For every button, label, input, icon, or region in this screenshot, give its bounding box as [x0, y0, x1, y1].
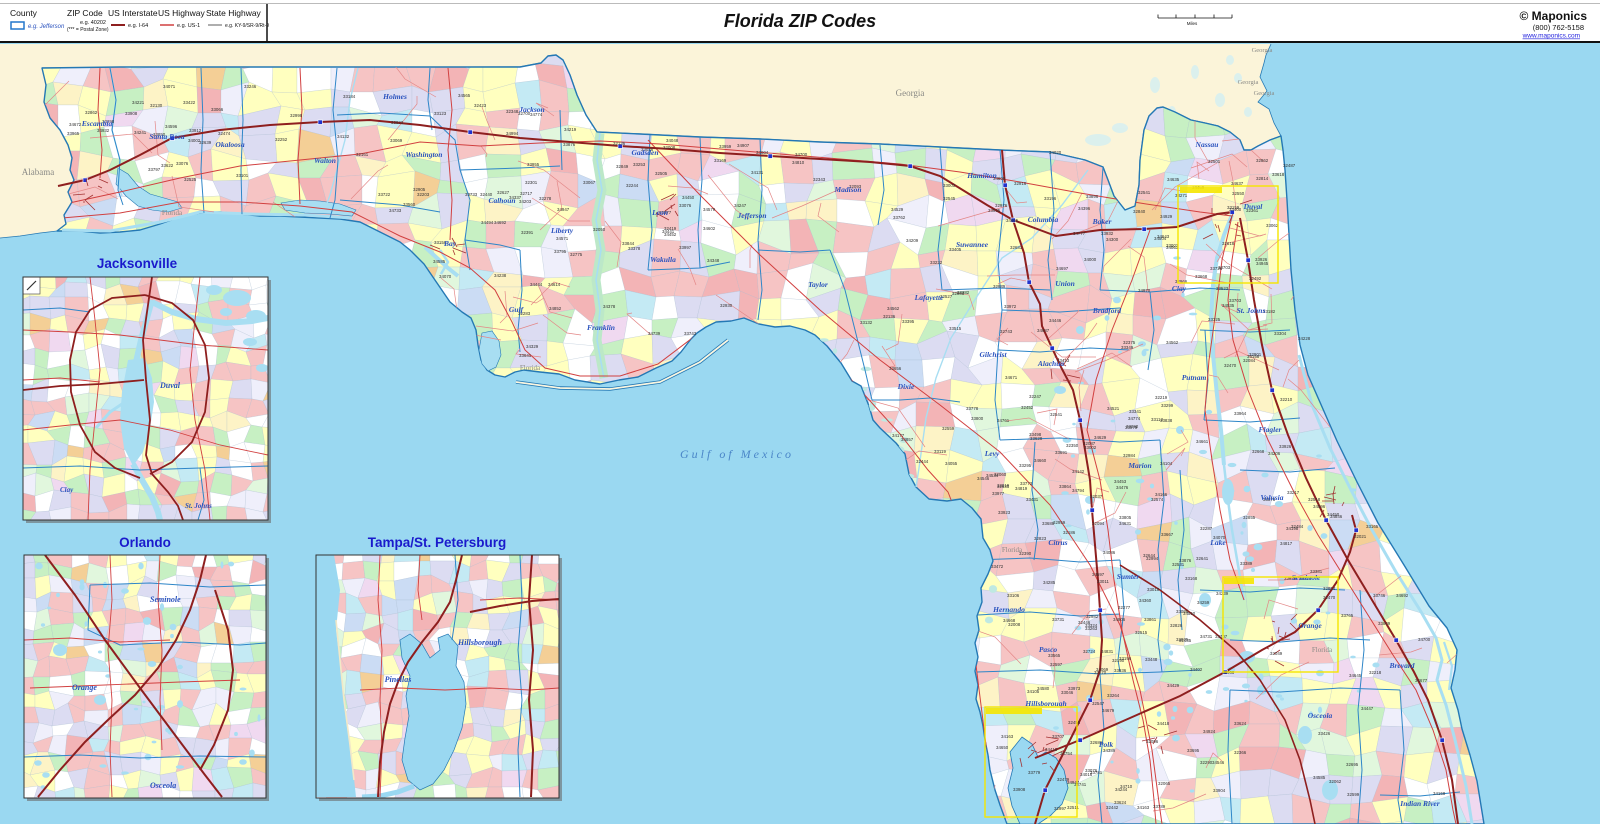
svg-text:US Interstate: US Interstate: [108, 8, 158, 18]
svg-text:34585: 34585: [433, 259, 446, 264]
svg-text:33271: 33271: [1175, 193, 1188, 198]
svg-text:34396: 34396: [1078, 206, 1091, 211]
svg-text:33965: 33965: [67, 131, 80, 136]
svg-text:34660: 34660: [1034, 458, 1047, 463]
svg-text:Holmes: Holmes: [382, 92, 407, 101]
svg-text:33861: 33861: [1144, 617, 1157, 622]
svg-text:33295: 33295: [1019, 463, 1032, 468]
svg-text:33624: 33624: [1234, 721, 1247, 726]
svg-text:32252: 32252: [275, 137, 288, 142]
svg-text:33973: 33973: [1068, 686, 1081, 691]
svg-text:34209: 34209: [906, 238, 919, 243]
svg-text:32474: 32474: [218, 131, 231, 136]
svg-text:32681: 32681: [1010, 245, 1023, 250]
svg-text:33923: 33923: [998, 510, 1011, 515]
svg-text:Escambia: Escambia: [81, 119, 113, 128]
svg-text:32190: 32190: [1112, 658, 1125, 663]
svg-text:32916: 32916: [1014, 181, 1027, 186]
svg-text:32547: 32547: [1092, 701, 1105, 706]
svg-text:32531: 32531: [1172, 562, 1185, 567]
svg-text:34219: 34219: [564, 127, 577, 132]
svg-text:32959: 32959: [1053, 520, 1066, 525]
svg-text:Orlando: Orlando: [119, 535, 171, 550]
svg-text:34131: 34131: [751, 170, 764, 175]
svg-text:32470: 32470: [1323, 595, 1336, 600]
svg-text:33622: 33622: [161, 163, 174, 168]
svg-text:33908: 33908: [125, 111, 138, 116]
svg-text:33324: 33324: [1085, 623, 1098, 628]
svg-text:33349: 33349: [1121, 345, 1134, 350]
svg-text:32998: 32998: [290, 113, 303, 118]
svg-text:34521: 34521: [1107, 406, 1120, 411]
svg-text:32627: 32627: [497, 190, 510, 195]
svg-text:34645: 34645: [1349, 673, 1362, 678]
svg-text:34629: 34629: [1094, 435, 1107, 440]
svg-text:33222: 33222: [930, 260, 943, 265]
svg-text:34731: 34731: [1200, 634, 1213, 639]
svg-text:34637: 34637: [1231, 181, 1244, 186]
svg-text:32599: 32599: [1347, 792, 1360, 797]
svg-text:34104: 34104: [1160, 461, 1173, 466]
svg-text:Marion: Marion: [1127, 461, 1151, 470]
svg-text:33904: 33904: [1213, 788, 1226, 793]
svg-text:33926: 33926: [1279, 444, 1292, 449]
svg-text:33168: 33168: [1185, 576, 1198, 581]
svg-text:33695: 33695: [1187, 748, 1200, 753]
svg-text:Columbia: Columbia: [1028, 215, 1059, 224]
svg-text:32210: 32210: [1280, 397, 1293, 402]
svg-text:32862: 32862: [1256, 158, 1269, 163]
svg-text:34534: 34534: [986, 473, 999, 478]
svg-text:34177: 34177: [892, 433, 905, 438]
svg-text:33076: 33076: [176, 161, 189, 166]
svg-text:33809: 33809: [1378, 621, 1391, 626]
svg-text:34739: 34739: [648, 331, 661, 336]
svg-text:34994: 34994: [506, 131, 519, 136]
svg-text:34447: 34447: [1361, 706, 1374, 711]
svg-text:Pinellas: Pinellas: [385, 675, 412, 684]
svg-text:33778: 33778: [966, 406, 979, 411]
svg-text:34614: 34614: [548, 282, 561, 287]
svg-text:33560: 33560: [403, 202, 416, 207]
svg-text:34055: 34055: [945, 461, 958, 466]
svg-text:e.g. Jefferson: e.g. Jefferson: [28, 24, 65, 30]
svg-text:32505: 32505: [655, 171, 668, 176]
svg-text:33299: 33299: [1161, 403, 1174, 408]
svg-text:Putnam: Putnam: [1182, 373, 1207, 382]
svg-text:33618: 33618: [1272, 172, 1285, 177]
svg-text:33628: 33628: [1030, 436, 1043, 441]
svg-text:32247: 32247: [1029, 394, 1042, 399]
svg-text:34932: 34932: [97, 128, 110, 133]
svg-text:32743: 32743: [1000, 329, 1013, 334]
svg-text:34259: 34259: [1197, 600, 1210, 605]
svg-text:33765: 33765: [1341, 613, 1354, 618]
svg-text:Indian River: Indian River: [1399, 799, 1439, 808]
svg-text:34692: 34692: [1396, 593, 1409, 598]
svg-text:33746: 33746: [1373, 593, 1386, 598]
svg-text:33123: 33123: [434, 111, 447, 116]
svg-text:34444: 34444: [530, 282, 543, 287]
svg-text:34774: 34774: [1128, 416, 1141, 421]
svg-text:Jackson: Jackson: [518, 105, 544, 114]
svg-text:34777: 34777: [1073, 231, 1086, 236]
svg-text:32541: 32541: [1050, 412, 1063, 417]
svg-text:34579: 34579: [703, 207, 716, 212]
svg-text:Gulf: Gulf: [509, 305, 525, 314]
svg-text:33781: 33781: [1090, 770, 1103, 775]
svg-text:34241: 34241: [134, 130, 147, 135]
svg-text:(800) 762-5158: (800) 762-5158: [1533, 23, 1584, 32]
svg-text:Seminole: Seminole: [150, 595, 181, 604]
svg-text:Clay: Clay: [1172, 284, 1187, 293]
svg-text:33838: 33838: [1160, 418, 1173, 423]
svg-text:32444: 32444: [916, 459, 929, 464]
svg-text:34142: 34142: [1072, 469, 1085, 474]
svg-text:34597: 34597: [1092, 572, 1105, 577]
svg-text:32639: 32639: [199, 140, 212, 145]
svg-text:32348: 32348: [506, 109, 519, 114]
svg-text:Jefferson: Jefferson: [736, 211, 766, 220]
svg-text:32290: 32290: [1200, 760, 1213, 765]
svg-text:County: County: [10, 8, 38, 18]
svg-text:33184: 33184: [343, 94, 356, 99]
svg-text:33935: 33935: [988, 208, 1001, 213]
svg-text:32008: 32008: [663, 145, 676, 150]
svg-text:33722: 33722: [378, 192, 391, 197]
svg-text:34546: 34546: [1212, 760, 1225, 765]
svg-text:33067: 33067: [583, 180, 596, 185]
svg-text:32492: 32492: [1249, 276, 1262, 281]
svg-text:Okaloosa: Okaloosa: [215, 140, 244, 149]
svg-text:34416: 34416: [1045, 747, 1058, 752]
svg-text:Clay: Clay: [60, 486, 74, 494]
svg-text:34700: 34700: [1418, 637, 1431, 642]
svg-text:34665: 34665: [1006, 218, 1019, 223]
svg-text:32862: 32862: [85, 110, 98, 115]
svg-text:33731: 33731: [1052, 617, 1065, 622]
svg-text:Suwannee: Suwannee: [956, 240, 989, 249]
svg-text:33389: 33389: [1240, 561, 1253, 566]
svg-text:34000: 34000: [1084, 257, 1097, 262]
svg-text:33448: 33448: [1145, 657, 1158, 662]
svg-text:Madison: Madison: [833, 185, 861, 194]
svg-text:32724: 32724: [1083, 649, 1096, 654]
svg-text:34761: 34761: [997, 418, 1010, 423]
svg-text:32350: 32350: [1066, 443, 1079, 448]
svg-text:33003: 33003: [943, 183, 956, 188]
svg-text:Gulf of Mexico: Gulf of Mexico: [680, 447, 794, 461]
svg-text:Hamilton: Hamilton: [966, 171, 997, 180]
svg-text:34810: 34810: [792, 160, 805, 165]
svg-text:33304: 33304: [1274, 331, 1287, 336]
svg-text:Walton: Walton: [314, 156, 336, 165]
svg-text:33076: 33076: [679, 203, 692, 208]
svg-text:33196: 33196: [1044, 196, 1057, 201]
svg-text:32574: 32574: [1151, 497, 1164, 502]
svg-text:32559: 32559: [942, 426, 955, 431]
svg-text:34071: 34071: [163, 84, 176, 89]
svg-text:34329: 34329: [526, 344, 539, 349]
svg-text:33101: 33101: [236, 173, 249, 178]
svg-text:34221: 34221: [132, 100, 145, 105]
svg-text:32695: 32695: [1346, 762, 1359, 767]
svg-text:32037: 32037: [1090, 494, 1103, 499]
svg-text:Lafayette: Lafayette: [914, 293, 944, 302]
svg-text:34907: 34907: [737, 143, 750, 148]
svg-text:33908: 33908: [1013, 787, 1026, 792]
svg-text:Citrus: Citrus: [1048, 538, 1067, 547]
svg-text:34661: 34661: [1196, 439, 1209, 444]
svg-text:34203: 34203: [519, 199, 532, 204]
svg-text:33707: 33707: [1052, 734, 1065, 739]
svg-text:34562: 34562: [1166, 340, 1179, 345]
svg-text:e.g. KY-9/SR-9/Rt-9: e.g. KY-9/SR-9/Rt-9: [225, 23, 269, 29]
svg-text:Florida: Florida: [1002, 546, 1023, 554]
svg-text:32282: 32282: [957, 290, 970, 295]
svg-text:33515: 33515: [949, 326, 962, 331]
svg-text:33823: 33823: [391, 120, 404, 125]
svg-text:32484: 32484: [1291, 524, 1304, 529]
svg-text:34565: 34565: [458, 93, 471, 98]
svg-text:34580: 34580: [1037, 686, 1050, 691]
svg-text:33169: 33169: [714, 158, 727, 163]
svg-text:34020: 34020: [1049, 150, 1062, 155]
svg-text:Orange: Orange: [1298, 621, 1322, 630]
svg-text:© Maponics: © Maponics: [1519, 9, 1587, 23]
svg-text:Hernando: Hernando: [992, 605, 1025, 614]
svg-text:Duval: Duval: [1243, 202, 1264, 211]
svg-text:33018: 33018: [1147, 587, 1160, 592]
svg-text:34450: 34450: [1327, 512, 1340, 517]
svg-text:Tampa/St. Petersburg: Tampa/St. Petersburg: [368, 535, 507, 550]
svg-text:33779: 33779: [1028, 770, 1041, 775]
svg-text:32094: 32094: [1092, 521, 1105, 526]
svg-text:34168: 34168: [1433, 791, 1446, 796]
svg-text:34596: 34596: [1313, 504, 1326, 509]
svg-text:32136: 32136: [613, 141, 626, 146]
svg-text:32597: 32597: [1050, 662, 1063, 667]
svg-text:State Highway: State Highway: [206, 8, 262, 18]
svg-text:32096: 32096: [1146, 739, 1159, 744]
svg-text:32982: 32982: [1086, 614, 1099, 619]
svg-text:34819: 34819: [1015, 486, 1028, 491]
svg-text:32277: 32277: [1118, 605, 1131, 610]
svg-text:Osceola: Osceola: [1308, 711, 1333, 720]
svg-text:33668: 33668: [1195, 274, 1208, 279]
svg-text:32826: 32826: [1170, 623, 1183, 628]
svg-text:33955: 33955: [527, 162, 540, 167]
svg-text:Calhoun: Calhoun: [488, 196, 515, 205]
svg-text:32930: 32930: [720, 303, 733, 308]
svg-text:32458: 32458: [1068, 720, 1081, 725]
svg-text:32989: 32989: [993, 284, 1006, 289]
svg-text:32442: 32442: [1106, 805, 1119, 810]
svg-text:32366: 32366: [1234, 750, 1247, 755]
svg-text:32065: 32065: [1158, 781, 1171, 786]
svg-text:32717: 32717: [520, 191, 533, 196]
svg-text:32130: 32130: [150, 103, 163, 108]
svg-text:32391: 32391: [521, 230, 534, 235]
svg-text:32244: 32244: [626, 183, 639, 188]
svg-text:34650: 34650: [996, 745, 1009, 750]
svg-text:Washington: Washington: [406, 150, 443, 159]
svg-text:33936: 33936: [1114, 668, 1127, 673]
svg-text:34643: 34643: [1157, 234, 1170, 239]
svg-text:32823: 32823: [1034, 536, 1047, 541]
svg-text:32186: 32186: [1063, 530, 1076, 535]
svg-text:33959: 33959: [719, 144, 732, 149]
svg-text:Lake: Lake: [1209, 538, 1226, 547]
svg-text:32855: 32855: [1243, 515, 1256, 520]
svg-text:32021: 32021: [1354, 534, 1367, 539]
svg-text:32541: 32541: [1138, 190, 1151, 195]
svg-text:34631: 34631: [1119, 521, 1132, 526]
svg-text:St. Johns: St. Johns: [1237, 306, 1266, 315]
svg-text:33011: 33011: [1097, 579, 1109, 584]
svg-text:33773: 33773: [1020, 481, 1033, 486]
svg-text:34070: 34070: [439, 274, 452, 279]
svg-text:Alabama: Alabama: [22, 167, 54, 177]
svg-text:33165: 33165: [1366, 524, 1379, 529]
svg-text:32343: 32343: [813, 177, 826, 182]
svg-text:33789: 33789: [1153, 804, 1166, 809]
svg-text:33805: 33805: [1119, 515, 1132, 520]
svg-text:33932: 33932: [1101, 231, 1114, 236]
svg-text:34529: 34529: [891, 207, 904, 212]
svg-text:34671: 34671: [1005, 375, 1018, 380]
svg-text:Orange: Orange: [72, 683, 97, 692]
svg-text:Florida: Florida: [162, 209, 183, 217]
svg-text:34163: 34163: [1001, 734, 1014, 739]
svg-text:34446: 34446: [1049, 318, 1062, 323]
svg-text:34285: 34285: [1043, 580, 1056, 585]
svg-text:34476: 34476: [1116, 485, 1129, 490]
svg-text:33062: 33062: [1266, 223, 1279, 228]
svg-text:33066: 33066: [211, 107, 224, 112]
svg-text:34700: 34700: [795, 152, 808, 157]
svg-text:34238: 34238: [494, 273, 507, 278]
svg-text:32278: 32278: [539, 196, 552, 201]
svg-text:34453: 34453: [1114, 479, 1127, 484]
svg-text:34677: 34677: [1415, 678, 1428, 683]
svg-text:32161: 32161: [356, 152, 369, 157]
svg-text:33762: 33762: [893, 215, 906, 220]
svg-text:34831: 34831: [1101, 649, 1114, 654]
svg-text:33004: 33004: [756, 150, 769, 155]
svg-text:32901: 32901: [1249, 352, 1262, 357]
svg-text:34247: 34247: [734, 203, 747, 208]
svg-text:33972: 33972: [1004, 304, 1017, 309]
svg-text:34794: 34794: [1072, 488, 1085, 493]
svg-text:33977: 33977: [992, 491, 1005, 496]
svg-text:Pasco: Pasco: [1039, 645, 1058, 654]
svg-text:34378: 34378: [603, 304, 616, 309]
svg-text:Alachua: Alachua: [1037, 359, 1065, 368]
svg-text:34697: 34697: [1056, 266, 1069, 271]
svg-text:33896: 33896: [1086, 194, 1099, 199]
svg-text:32570: 32570: [1094, 670, 1107, 675]
svg-text:34687: 34687: [1037, 328, 1050, 333]
svg-text:33069: 33069: [390, 138, 403, 143]
svg-text:32525: 32525: [184, 177, 197, 182]
svg-text:Liberty: Liberty: [550, 226, 574, 235]
svg-text:32668: 32668: [1252, 449, 1265, 454]
svg-text:33378: 33378: [628, 246, 641, 251]
svg-text:32423: 32423: [474, 103, 487, 108]
svg-text:34360: 34360: [1139, 598, 1152, 603]
svg-text:32087: 32087: [1083, 441, 1096, 446]
svg-text:34924: 34924: [1203, 729, 1216, 734]
svg-text:32049: 32049: [1270, 651, 1283, 656]
svg-text:34450: 34450: [682, 195, 695, 200]
svg-text:Miles: Miles: [1187, 21, 1198, 26]
svg-text:33395: 33395: [902, 319, 915, 324]
svg-text:34692: 34692: [494, 220, 507, 225]
svg-text:34163: 34163: [1137, 805, 1150, 810]
svg-text:Georgia: Georgia: [896, 88, 925, 98]
svg-text:Georgia: Georgia: [1254, 90, 1275, 97]
svg-text:34596: 34596: [165, 124, 178, 129]
svg-text:33864: 33864: [1059, 484, 1072, 489]
svg-text:34206: 34206: [1268, 451, 1281, 456]
svg-text:Franklin: Franklin: [587, 323, 615, 332]
svg-text:Brevard: Brevard: [1389, 661, 1415, 670]
svg-text:33656: 33656: [889, 366, 902, 371]
svg-text:32775: 32775: [570, 252, 583, 257]
svg-text:34817: 34817: [1280, 541, 1293, 546]
svg-text:34086: 34086: [1103, 550, 1116, 555]
svg-text:33132: 33132: [860, 320, 873, 325]
svg-text:Duval: Duval: [159, 381, 181, 390]
svg-text:34947: 34947: [1067, 780, 1080, 785]
svg-text:34970: 34970: [1138, 288, 1151, 293]
svg-text:33624: 33624: [1114, 800, 1127, 805]
svg-text:33264: 33264: [1107, 693, 1120, 698]
svg-text:Santa Rosa: Santa Rosa: [149, 132, 184, 141]
svg-text:32515: 32515: [1135, 630, 1148, 635]
svg-text:34947: 34947: [557, 207, 570, 212]
svg-text:33086: 33086: [1176, 609, 1189, 614]
svg-text:e.g. US-1: e.g. US-1: [177, 23, 200, 29]
svg-text:Florida ZIP Codes: Florida ZIP Codes: [724, 11, 876, 31]
svg-text:Gilchrist: Gilchrist: [979, 350, 1007, 359]
svg-text:32618: 32618: [1222, 241, 1235, 246]
svg-text:34733: 34733: [389, 208, 402, 213]
svg-text:Jacksonville: Jacksonville: [97, 256, 178, 271]
svg-text:33290: 33290: [1126, 424, 1139, 429]
svg-text:33733: 33733: [465, 192, 478, 197]
svg-text:32287: 32287: [1200, 526, 1213, 531]
svg-text:33253: 33253: [633, 162, 646, 167]
svg-text:34494: 34494: [481, 220, 494, 225]
svg-text:32219: 32219: [1155, 395, 1168, 400]
svg-text:34906: 34906: [1113, 617, 1126, 622]
svg-text:33844: 33844: [622, 241, 635, 246]
svg-text:St. Johns: St. Johns: [185, 502, 212, 510]
svg-text:34562: 34562: [887, 306, 900, 311]
svg-text:32136: 32136: [883, 314, 896, 319]
svg-text:32849: 32849: [616, 164, 629, 169]
svg-text:34602: 34602: [703, 226, 716, 231]
svg-text:32050: 32050: [593, 227, 606, 232]
svg-text:33743: 33743: [684, 331, 697, 336]
svg-text:33119: 33119: [934, 449, 946, 454]
svg-text:34535: 34535: [1222, 303, 1235, 308]
svg-text:34418: 34418: [1157, 721, 1170, 726]
svg-text:32984: 32984: [1123, 453, 1136, 458]
svg-text:34754: 34754: [1060, 751, 1073, 756]
